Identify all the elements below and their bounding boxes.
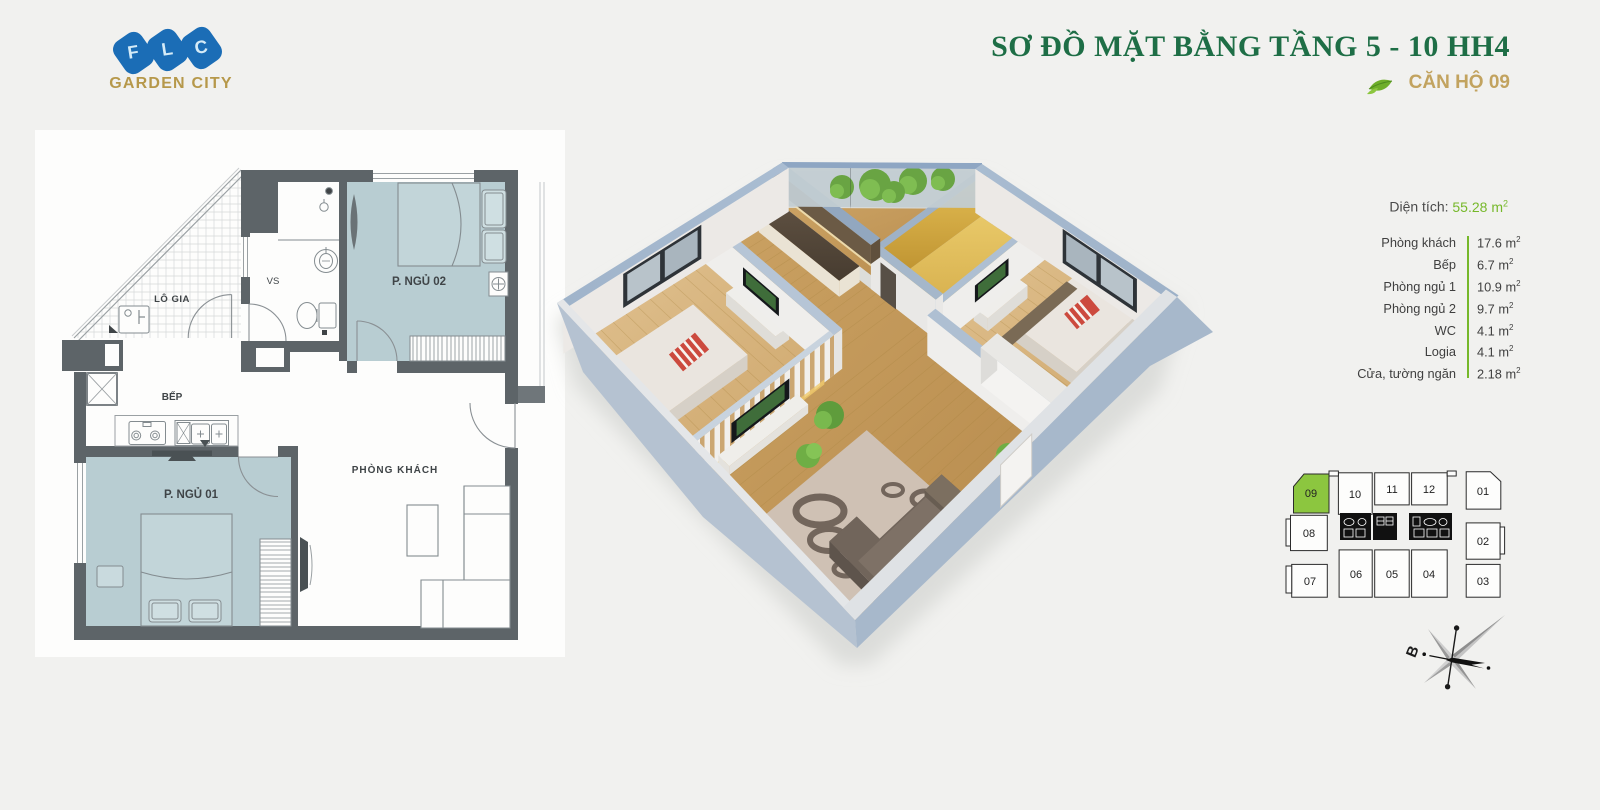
svg-text:VS: VS <box>267 276 280 287</box>
svg-text:01: 01 <box>1477 486 1489 498</box>
svg-text:12: 12 <box>1423 484 1435 496</box>
svg-text:08: 08 <box>1303 528 1315 540</box>
svg-text:05: 05 <box>1386 569 1398 581</box>
svg-text:BẾP: BẾP <box>162 390 183 403</box>
svg-text:10: 10 <box>1349 489 1361 501</box>
svg-text:03: 03 <box>1477 576 1489 588</box>
svg-text:02: 02 <box>1477 536 1489 548</box>
svg-text:P. NGỦ 02: P. NGỦ 02 <box>392 275 446 288</box>
svg-text:09: 09 <box>1305 488 1317 500</box>
svg-text:07: 07 <box>1304 576 1316 588</box>
svg-text:04: 04 <box>1423 569 1435 581</box>
svg-text:LÔ GIA: LÔ GIA <box>154 293 190 305</box>
svg-text:B: B <box>1403 643 1423 660</box>
svg-text:11: 11 <box>1386 484 1397 496</box>
svg-text:P. NGỦ 01: P. NGỦ 01 <box>164 488 219 501</box>
svg-text:PHÒNG KHÁCH: PHÒNG KHÁCH <box>352 463 439 476</box>
svg-text:06: 06 <box>1350 569 1362 581</box>
